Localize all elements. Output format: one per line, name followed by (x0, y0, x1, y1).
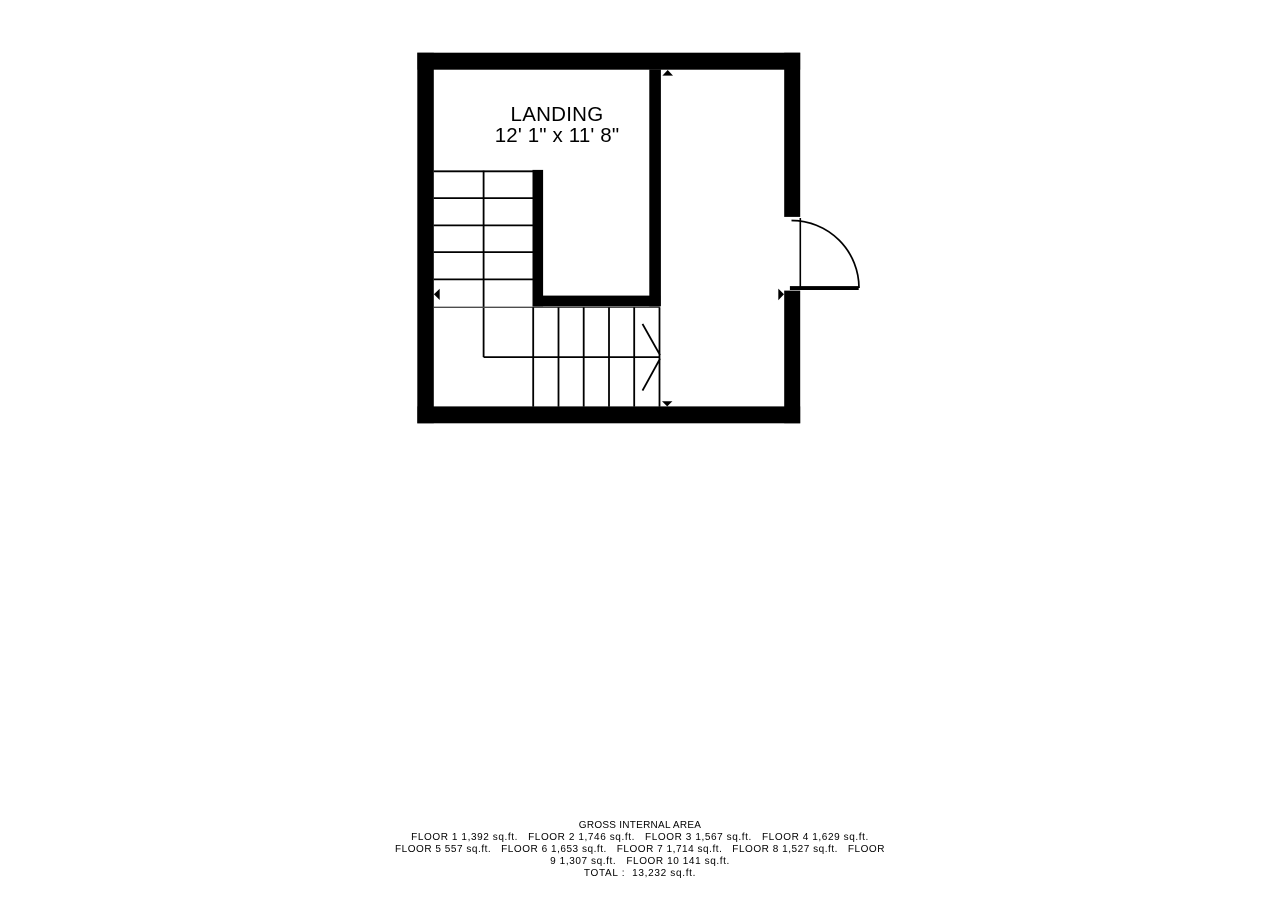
svg-text:GROSS INTERNAL AREA: GROSS INTERNAL AREA (579, 820, 701, 831)
svg-text:9 1,307 sq.ft. FLOOR 10 141: 9 1,307 sq.ft. FLOOR 10 141 sq.ft. (550, 856, 730, 867)
svg-text:FLOOR 1 1,392 sq.ft. FLOOR 2: FLOOR 1 1,392 sq.ft. FLOOR 2 1,746 sq.ft… (411, 832, 869, 843)
svg-text:LANDING: LANDING (511, 103, 604, 126)
svg-text:TOTAL : 13,232 sq.ft.: TOTAL : 13,232 sq.ft. (584, 868, 696, 879)
svg-text:12' 1" x 11' 8": 12' 1" x 11' 8" (495, 124, 620, 147)
svg-text:FLOOR 5 557 sq.ft. FLOOR 6 1: FLOOR 5 557 sq.ft. FLOOR 6 1,653 sq.ft. … (395, 844, 885, 855)
